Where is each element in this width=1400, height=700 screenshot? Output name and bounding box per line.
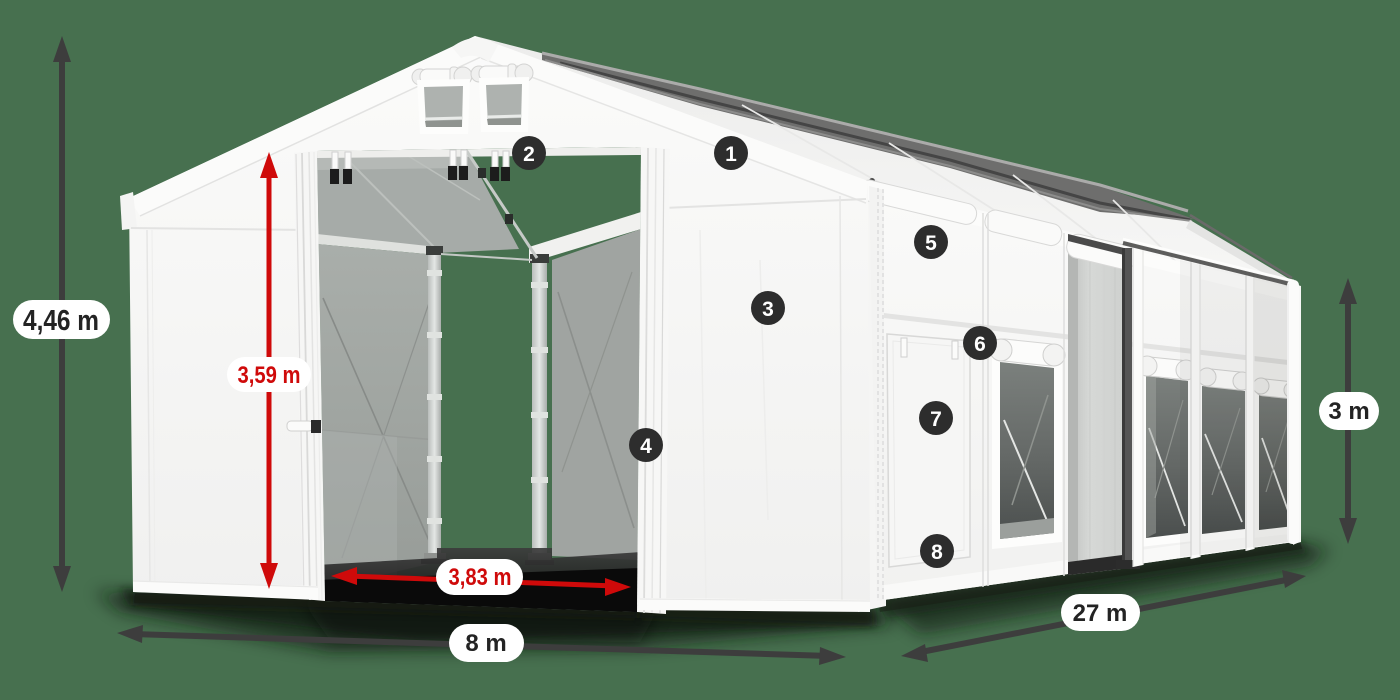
- svg-text:4: 4: [640, 435, 652, 458]
- svg-text:5: 5: [925, 232, 937, 255]
- svg-text:3,59 m: 3,59 m: [238, 362, 301, 389]
- svg-text:2: 2: [523, 143, 535, 166]
- svg-text:27 m: 27 m: [1073, 600, 1128, 627]
- svg-text:8 m: 8 m: [465, 630, 506, 657]
- svg-text:4,46 m: 4,46 m: [23, 305, 99, 337]
- svg-text:6: 6: [974, 333, 986, 356]
- svg-text:3 m: 3 m: [1328, 398, 1369, 425]
- svg-text:1: 1: [725, 143, 737, 166]
- svg-text:8: 8: [931, 541, 943, 564]
- svg-text:3,83 m: 3,83 m: [449, 564, 512, 591]
- svg-text:3: 3: [762, 298, 774, 321]
- svg-text:7: 7: [930, 408, 942, 431]
